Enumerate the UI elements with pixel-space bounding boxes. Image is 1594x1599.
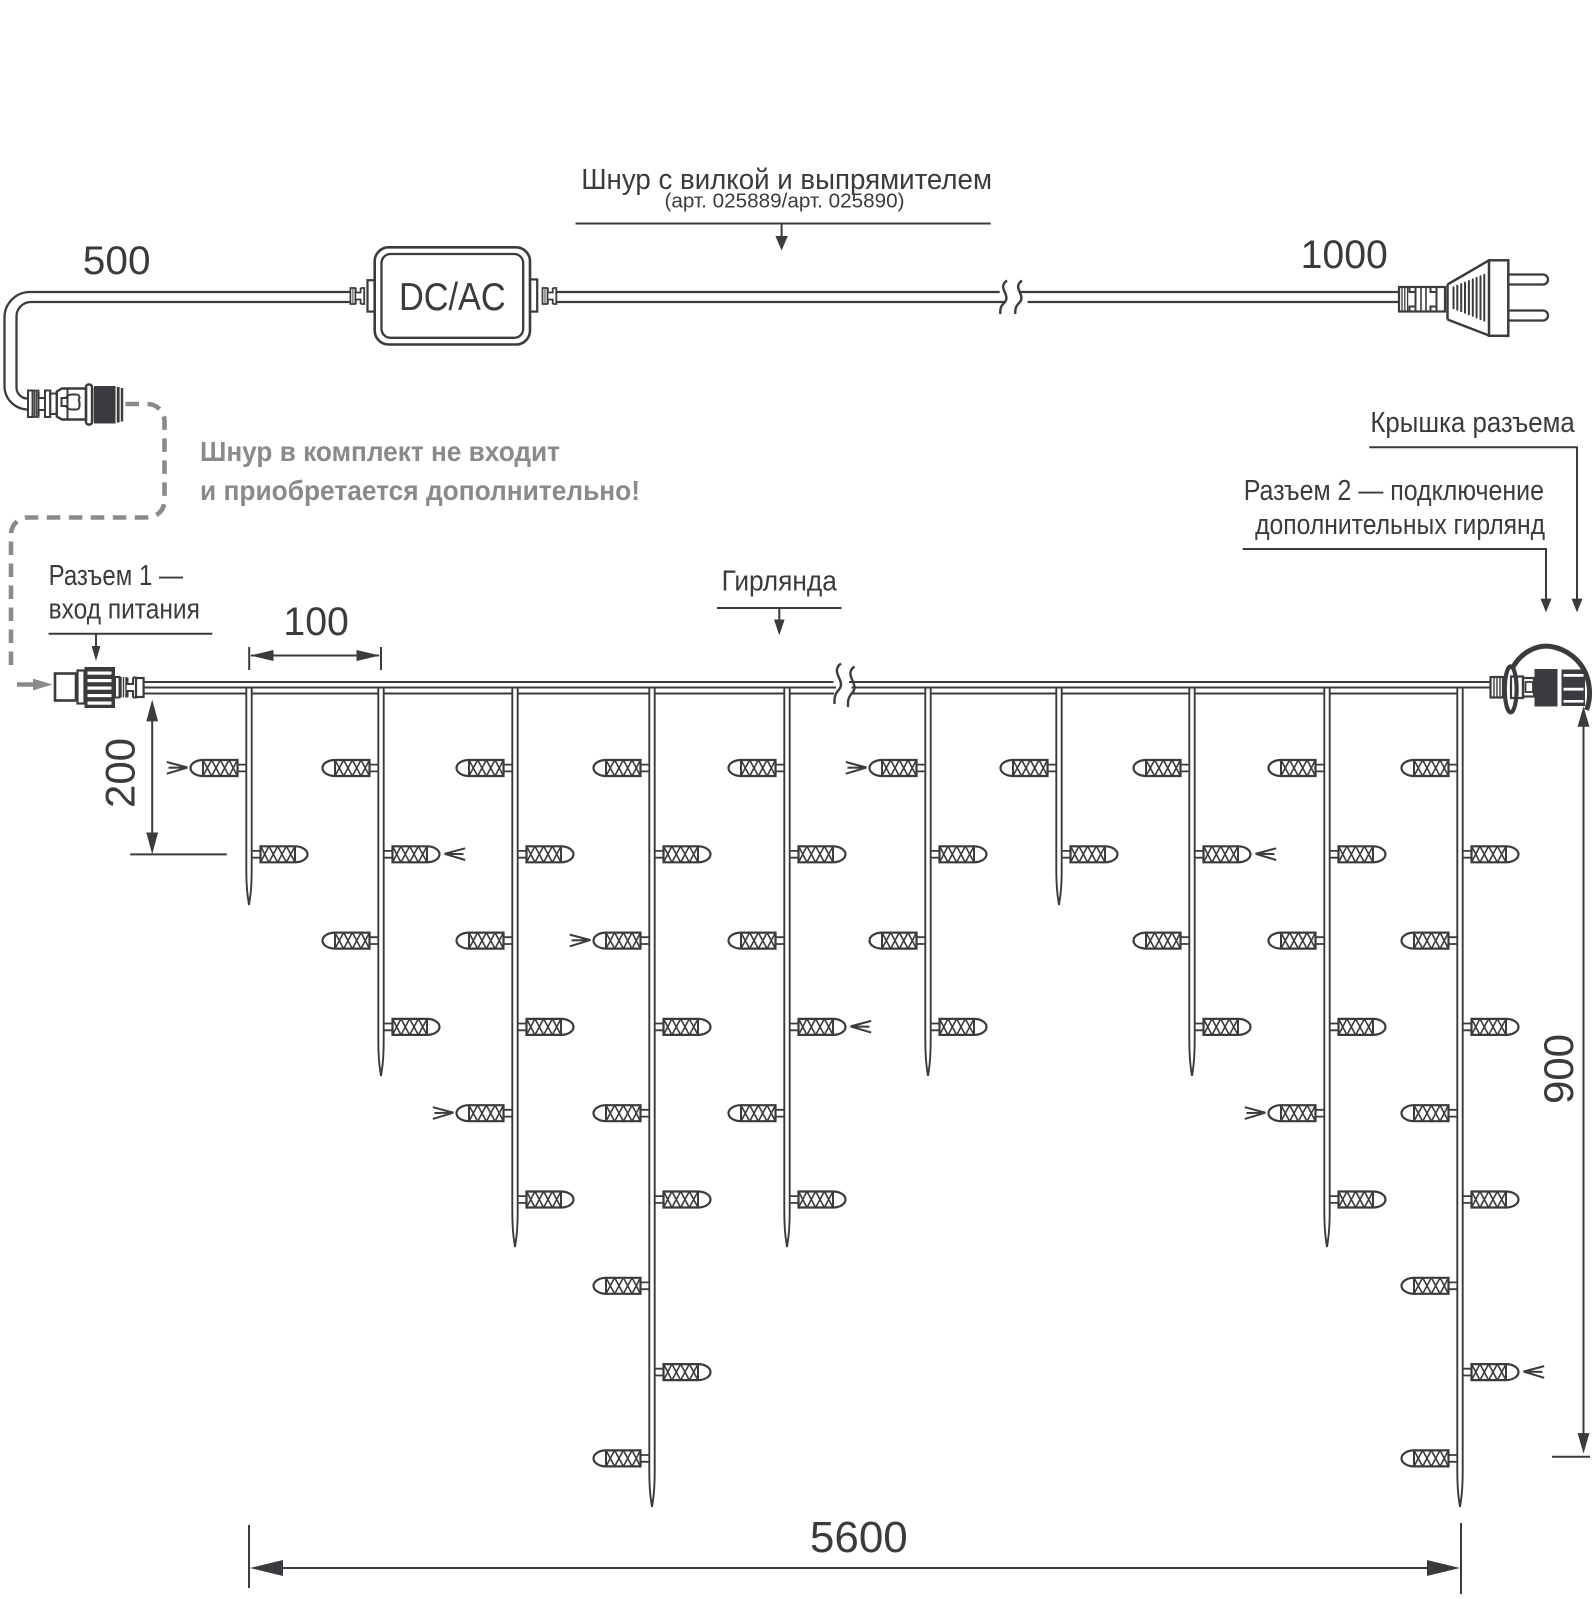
svg-text:5600: 5600 (810, 1513, 908, 1562)
svg-text:(арт. 025889/арт. 025890): (арт. 025889/арт. 025890) (665, 190, 905, 213)
svg-text:вход питания: вход питания (49, 594, 200, 626)
svg-text:Гирлянда: Гирлянда (722, 566, 838, 598)
svg-text:DC/AC: DC/AC (399, 276, 506, 319)
svg-text:500: 500 (83, 239, 151, 283)
svg-text:900: 900 (1535, 1034, 1582, 1104)
svg-text:дополнительных гирлянд: дополнительных гирлянд (1255, 509, 1545, 541)
svg-text:Шнур в комплект не входит: Шнур в комплект не входит (200, 436, 560, 467)
svg-text:200: 200 (96, 738, 143, 808)
svg-text:и приобретается дополнительно!: и приобретается дополнительно! (200, 475, 640, 506)
svg-text:Разъем 2 — подключение: Разъем 2 — подключение (1244, 475, 1544, 507)
svg-text:Крышка разъема: Крышка разъема (1370, 407, 1575, 439)
svg-text:Разъем 1 —: Разъем 1 — (49, 560, 183, 592)
svg-text:1000: 1000 (1301, 233, 1388, 277)
svg-text:100: 100 (283, 600, 349, 644)
